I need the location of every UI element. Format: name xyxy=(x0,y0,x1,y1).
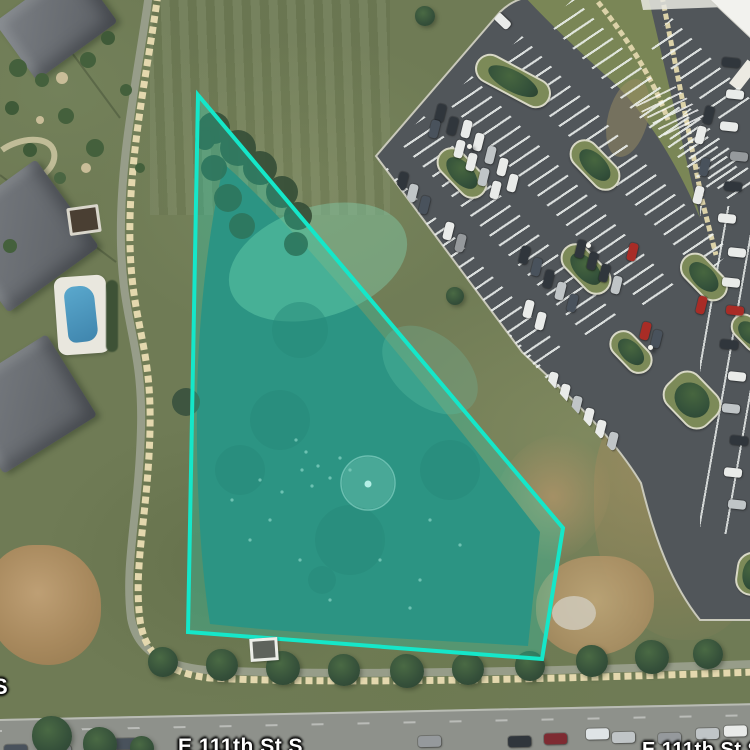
street-car xyxy=(418,736,441,747)
street-car xyxy=(586,728,609,739)
tree xyxy=(32,716,72,750)
street-name-label: E 111th St S xyxy=(178,735,303,750)
street-car xyxy=(508,736,531,747)
street-car xyxy=(612,732,635,743)
street-car xyxy=(4,744,27,750)
street-car xyxy=(724,725,747,736)
street-name-label: E 111th St S xyxy=(642,739,750,750)
street-car xyxy=(544,733,567,744)
utility-structure xyxy=(249,637,279,662)
parcel-polygon[interactable] xyxy=(188,95,563,659)
street-car xyxy=(696,728,719,739)
street-name-label: S xyxy=(0,674,8,700)
overlay-layer xyxy=(0,0,750,750)
satellite-map[interactable]: E 111th St SE 111th St SS xyxy=(0,0,750,750)
